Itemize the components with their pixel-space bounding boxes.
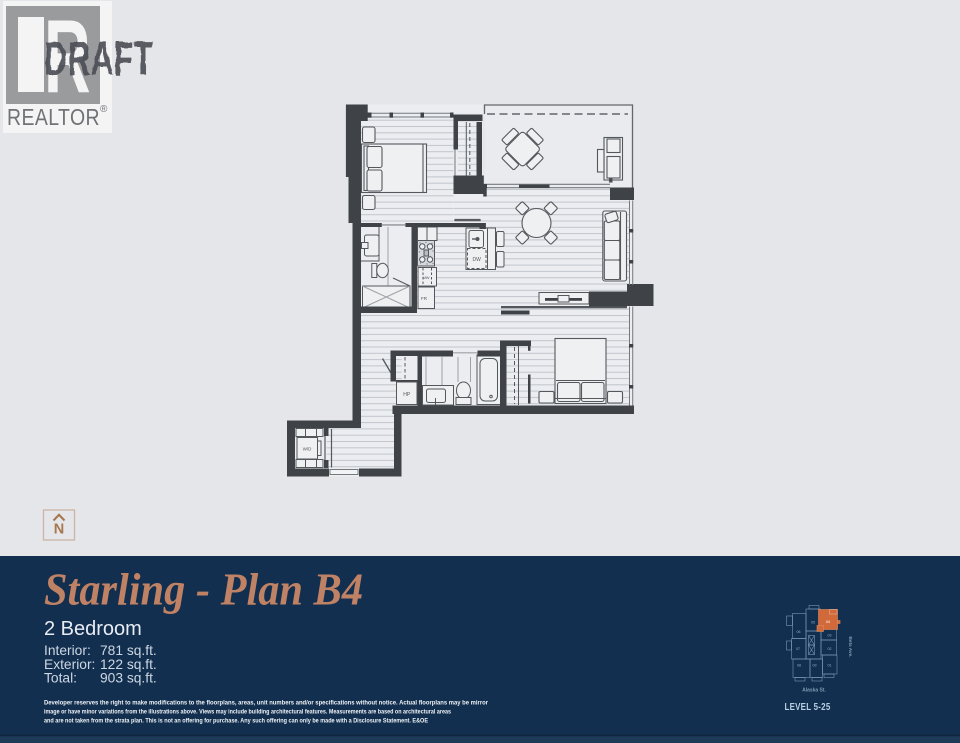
svg-text:Starling - Plan B4: Starling - Plan B4: [44, 564, 363, 615]
svg-text:FR: FR: [421, 296, 428, 301]
svg-text:LEVEL 5-25: LEVEL 5-25: [785, 702, 831, 713]
svg-text:®: ®: [100, 104, 108, 115]
svg-text:Exterior:: Exterior:: [44, 657, 95, 672]
svg-text:DRAFT: DRAFT: [44, 33, 153, 86]
svg-text:Alaska St.: Alaska St.: [802, 688, 826, 694]
svg-text:Total:: Total:: [44, 671, 77, 686]
svg-text:Beta Ave.: Beta Ave.: [848, 637, 853, 658]
svg-text:02: 02: [828, 647, 832, 651]
svg-text:Developer reserves the right t: Developer reserves the right to make mod…: [44, 700, 488, 707]
svg-text:Interior:: Interior:: [44, 643, 91, 658]
svg-text:903 sq.ft.: 903 sq.ft.: [100, 671, 157, 686]
svg-text:W/D: W/D: [303, 447, 312, 452]
svg-text:06: 06: [797, 630, 801, 634]
svg-text:2 Bedroom: 2 Bedroom: [44, 618, 142, 640]
svg-text:and are not taken from the str: and are not taken from the strata plan. …: [44, 718, 428, 725]
svg-text:REALTOR: REALTOR: [7, 104, 100, 130]
svg-text:09: 09: [813, 664, 817, 668]
svg-text:HP: HP: [403, 392, 411, 398]
svg-text:image or have minor variations: image or have minor variations from the …: [44, 709, 451, 716]
svg-text:04: 04: [826, 620, 830, 624]
svg-text:122 sq.ft.: 122 sq.ft.: [100, 657, 157, 672]
svg-text:01: 01: [828, 664, 832, 668]
svg-text:DW: DW: [473, 257, 482, 263]
svg-text:N: N: [54, 522, 64, 538]
svg-text:781 sq.ft.: 781 sq.ft.: [100, 643, 157, 658]
svg-text:07: 07: [796, 647, 800, 651]
svg-text:MW: MW: [422, 275, 429, 280]
svg-text:08: 08: [797, 664, 801, 668]
svg-text:03: 03: [828, 633, 832, 637]
svg-text:05: 05: [811, 621, 815, 625]
